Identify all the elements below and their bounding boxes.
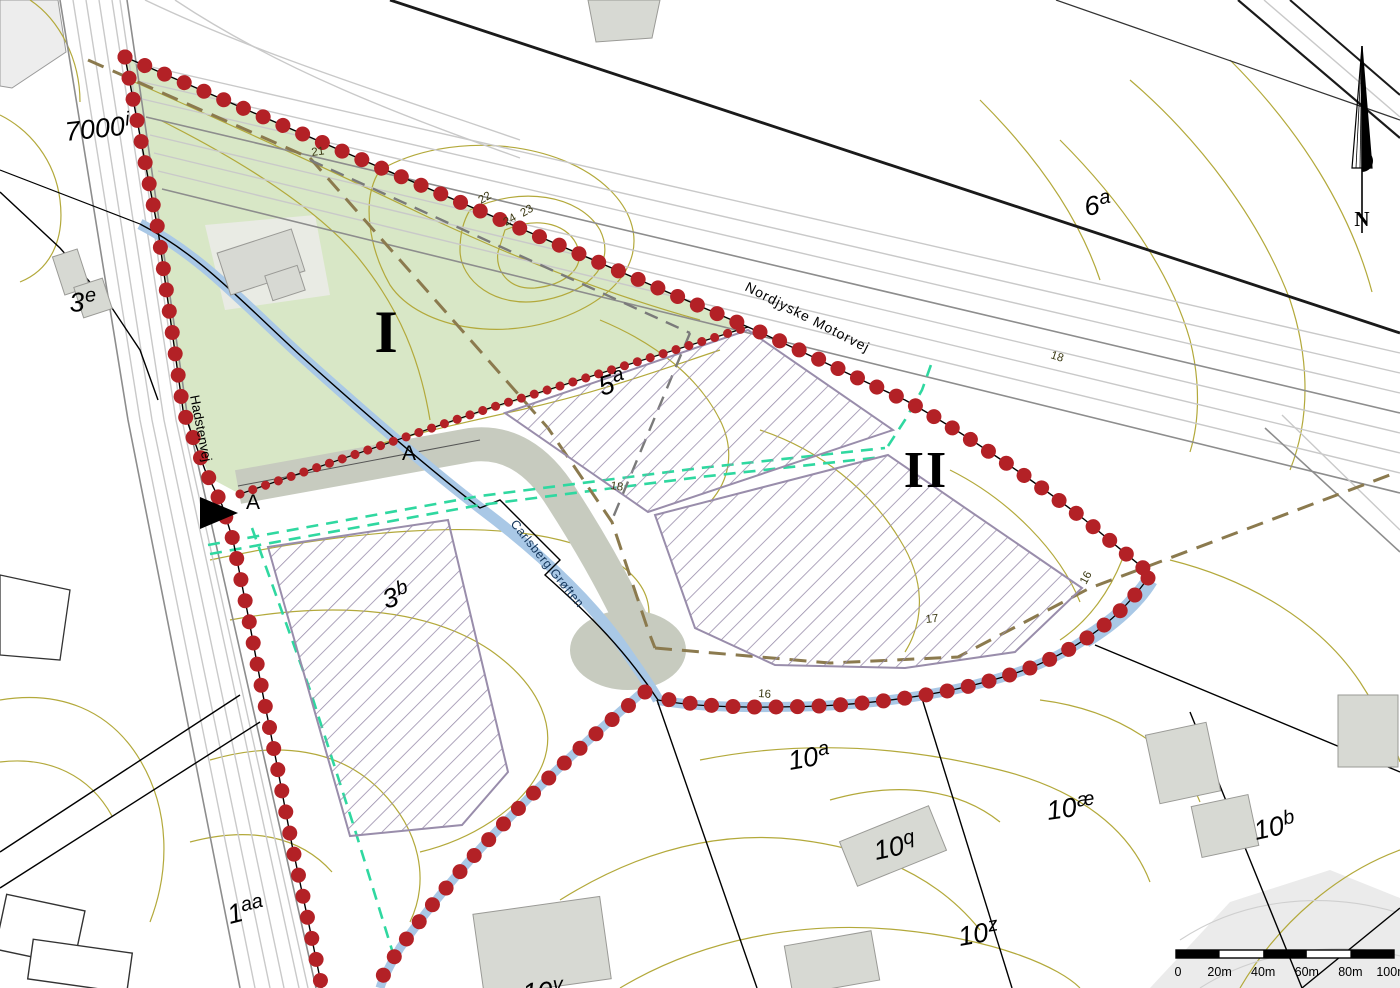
zone1-label: I [374, 299, 397, 365]
svg-text:10: 10 [786, 741, 821, 776]
scale-bar-segment [1176, 950, 1220, 958]
building [588, 0, 660, 42]
map-canvas: A A Nordjyske Motorvej Hadstenvej Carlsb… [0, 0, 1400, 988]
svg-text:10: 10 [871, 830, 907, 866]
plan-map: A A Nordjyske Motorvej Hadstenvej Carlsb… [0, 0, 1400, 988]
svg-text:7000: 7000 [63, 111, 126, 147]
north-label: N [1354, 207, 1369, 231]
building [1191, 795, 1259, 858]
scale-tick-40m: 40m [1251, 965, 1275, 979]
svg-text:10: 10 [1251, 810, 1287, 846]
svg-text:10: 10 [1045, 792, 1079, 826]
svg-text:e: e [84, 284, 97, 307]
contour-label-16-stream: 16 [758, 688, 772, 701]
scale-tick-100m: 100m [1376, 965, 1400, 979]
contour-label-17: 17 [925, 613, 939, 626]
section-label-a-right: A [402, 442, 416, 465]
scale-tick-60m: 60m [1295, 965, 1319, 979]
zone2-label: II [904, 442, 948, 499]
section-label-a-left: A [246, 491, 260, 514]
scale-tick-80m: 80m [1338, 965, 1362, 979]
building [1338, 695, 1398, 767]
svg-text:3: 3 [68, 287, 85, 318]
scale-bar-segment [1263, 950, 1307, 958]
scale-tick-0: 0 [1175, 965, 1182, 979]
parcel-outline [0, 575, 70, 660]
scale-bar-segment [1350, 950, 1394, 958]
contour-label-18-mid: 18 [610, 480, 624, 494]
svg-text:10: 10 [956, 917, 991, 952]
scale-tick-20m: 20m [1207, 965, 1231, 979]
svg-text:10: 10 [521, 976, 553, 988]
svg-text:æ: æ [1075, 787, 1096, 811]
contour-label-21: 21 [311, 145, 325, 159]
